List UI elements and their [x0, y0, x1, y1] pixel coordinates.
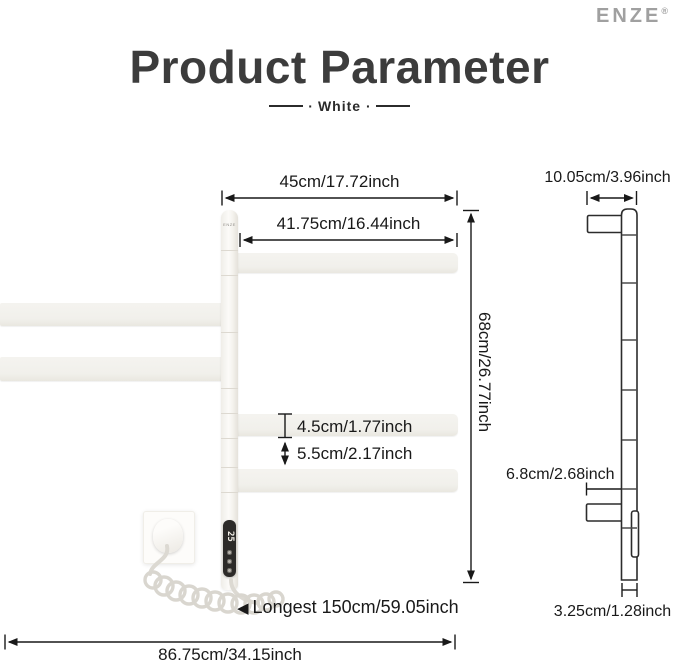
panel-button-timer-icon [227, 559, 232, 564]
swing-arm-left-top [0, 303, 222, 326]
control-panel: 25 [223, 520, 236, 577]
dim-cord-length: ◀Longest 150cm/59.05inch [237, 597, 459, 618]
brand-name: ENZE [596, 5, 661, 27]
dim-side-pole-depth: 3.25cm/1.28inch [550, 603, 675, 621]
towel-bar-bottom [236, 469, 458, 492]
brand-logo: ENZE® [596, 5, 668, 28]
product-parameter-page: ENZE® Product Parameter · White · ENZE 2… [0, 0, 679, 663]
dim-bar-thickness: 4.5cm/1.77inch [297, 417, 412, 437]
side-control-panel [632, 511, 639, 557]
subtitle-dash-left [269, 105, 303, 107]
towel-bar-top [236, 253, 458, 273]
color-subtitle: · White · [0, 98, 679, 114]
subtitle-dot-left: · [308, 98, 313, 114]
subtitle-color-name: White [318, 98, 361, 114]
dim-side-top-depth: 10.05cm/3.96inch [540, 169, 675, 187]
dim-top-width: 45cm/17.72inch [222, 172, 457, 192]
wall-socket [143, 511, 195, 564]
temperature-display: 25 [223, 525, 236, 547]
dim-bar-length: 41.75cm/16.44inch [240, 214, 457, 234]
swing-arm-left-bottom [0, 357, 222, 381]
side-pole [622, 209, 638, 580]
dim-bar-gap: 5.5cm/2.17inch [297, 444, 412, 464]
registered-mark: ® [661, 6, 668, 16]
page-title: Product Parameter [0, 40, 679, 94]
subtitle-dot-right: · [366, 98, 371, 114]
side-arm-bottom [587, 504, 623, 521]
panel-button-power-icon [227, 550, 232, 555]
dim-total-width: 86.75cm/34.15inch [30, 645, 430, 663]
cord-pointer-icon: ◀ [237, 600, 249, 617]
cord-length-text: Longest 150cm/59.05inch [253, 597, 459, 617]
subtitle-dash-right [376, 105, 410, 107]
pole-brand-label: ENZE [221, 222, 238, 227]
side-arm-top [588, 216, 623, 233]
panel-button-heat-icon [227, 568, 232, 573]
dim-height: 68cm/26.77inch [474, 312, 494, 432]
dim-side-arm-depth: 6.8cm/2.68inch [506, 466, 615, 484]
power-plug [153, 519, 183, 553]
